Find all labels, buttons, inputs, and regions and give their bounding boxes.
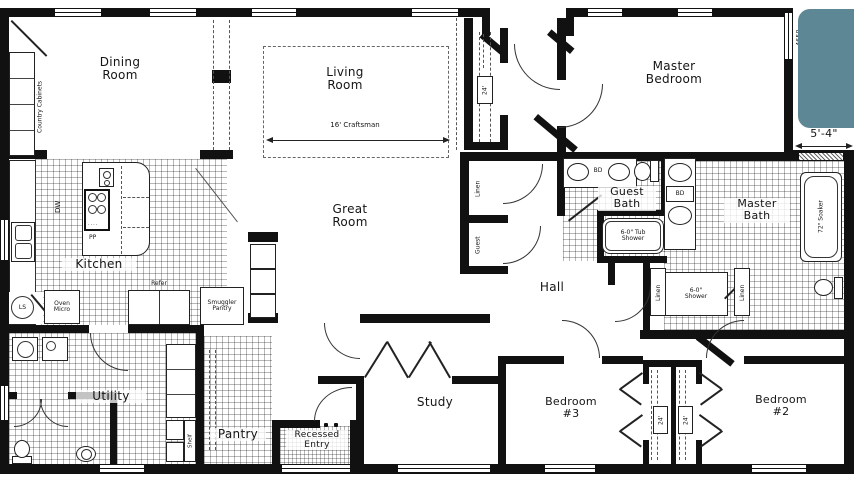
room-label-bedroom2: Bedroom #2 xyxy=(746,394,816,419)
utility-cabinet-box xyxy=(166,442,184,462)
arch-cased-opening xyxy=(229,20,230,150)
linen-door-arc xyxy=(503,164,543,204)
closet3-shelf: 24' xyxy=(653,406,668,434)
bifold-door xyxy=(700,430,723,447)
dishwasher-label: DW xyxy=(52,196,64,218)
lazy-susan-label: LS xyxy=(11,296,34,319)
room-label-hall: Hall xyxy=(528,281,576,294)
entry-closet-shelf: 24' xyxy=(477,76,493,104)
dryer xyxy=(42,337,68,361)
refrigerator-label: Refer xyxy=(128,281,190,287)
refrigerator xyxy=(128,290,190,325)
smuggler-pantry-label: Smuggler Pantry xyxy=(208,300,237,313)
great-room-cabinet xyxy=(250,269,276,294)
entry-closet-shelf-label: 24' xyxy=(478,77,492,103)
wall xyxy=(602,356,643,364)
entry-porch-sill xyxy=(282,464,350,474)
wall xyxy=(360,314,490,323)
wall xyxy=(498,356,506,464)
guest-sink xyxy=(567,163,589,181)
great-room-cabinet xyxy=(250,244,276,269)
french-door-leaf xyxy=(428,341,451,378)
cooktop: .... xyxy=(84,189,110,231)
arch-cased-opening xyxy=(213,20,214,150)
utility-cabinet-box xyxy=(166,420,184,440)
room-label-utility: Utility xyxy=(76,390,146,403)
utility-shelf: Shelf xyxy=(184,420,196,462)
wall xyxy=(608,263,615,285)
wall xyxy=(671,364,676,464)
window xyxy=(412,8,458,17)
washer xyxy=(12,337,38,361)
storm-door-line xyxy=(483,34,484,68)
wall xyxy=(272,420,280,464)
bath-toilet xyxy=(14,440,30,458)
living-room-carpet-edge xyxy=(263,46,449,158)
master-shower-label: 6-0" Shower xyxy=(685,288,707,301)
porch-opening xyxy=(488,8,568,18)
bifold-door xyxy=(620,414,643,431)
room-label-dining: Dining Room xyxy=(75,56,165,83)
master-bath-bd-label: BD xyxy=(676,191,685,197)
guest-tub: 6-0" Tub Shower xyxy=(602,218,664,254)
master-bd-cabinet: BD xyxy=(666,186,694,202)
guest-bath-bd-label: BD xyxy=(588,168,608,174)
guest-toilet xyxy=(634,162,651,181)
soaker-tub: 72" Soaker xyxy=(800,172,842,262)
room-label-master-bedroom: Master Bedroom xyxy=(618,60,730,87)
decorative-teal-block xyxy=(798,9,854,128)
wall xyxy=(8,8,788,17)
living-width-dimension: 16' Craftsman xyxy=(305,122,405,130)
window xyxy=(545,464,595,474)
french-door-leaf xyxy=(364,341,388,378)
master-toilet xyxy=(814,279,833,296)
utility-shelf-label: Shelf xyxy=(185,422,196,461)
kitchen-island: .... PP xyxy=(82,162,150,256)
floor-plan: Country Cabinets DW LS Oven Micro Refer … xyxy=(0,0,854,482)
oven-micro: Oven Micro xyxy=(44,290,80,324)
window xyxy=(252,8,296,17)
window xyxy=(55,8,101,17)
bifold-door xyxy=(620,372,643,389)
window xyxy=(784,13,793,59)
door-mark xyxy=(324,423,328,427)
window xyxy=(0,220,9,260)
bifold-door xyxy=(699,414,722,431)
closet-shelf-line xyxy=(651,370,652,460)
wall xyxy=(464,18,473,150)
french-door-leaf xyxy=(408,341,432,378)
master-sink xyxy=(668,163,692,182)
room-label-master-bath: Master Bath xyxy=(724,198,790,223)
room-label-great-room: Great Room xyxy=(318,203,382,230)
bifold-door xyxy=(700,388,723,405)
room-label-bedroom3: Bedroom #3 xyxy=(536,396,606,421)
bedroom3-door-arc xyxy=(562,320,600,358)
guest-tub-label: 6-0" Tub Shower xyxy=(621,230,646,243)
bifold-door xyxy=(619,388,642,405)
closet2-shelf: 24' xyxy=(678,406,693,434)
window xyxy=(150,8,196,17)
hall-guest-label: Guest xyxy=(472,227,484,263)
wall xyxy=(200,150,233,159)
master-bedroom-door-arc xyxy=(559,84,603,128)
room-label-guest-bath: Guest Bath xyxy=(598,186,656,211)
master-sink xyxy=(668,206,692,225)
wall xyxy=(460,155,469,273)
arrowhead xyxy=(266,137,273,143)
window xyxy=(588,8,622,17)
master-linen-label: Linen xyxy=(736,270,749,315)
wall xyxy=(452,376,502,384)
wall xyxy=(128,325,196,333)
utility-cabinets xyxy=(166,344,196,418)
closet3-shelf-label: 24' xyxy=(655,408,667,433)
door-mark xyxy=(334,423,338,427)
country-cabinets-label: Country Cabinets xyxy=(35,62,45,152)
room-label-study: Study xyxy=(406,396,464,409)
wall xyxy=(643,440,649,464)
dimension-line xyxy=(797,146,851,147)
guest-toilet-tank xyxy=(650,160,659,182)
wall xyxy=(9,325,89,333)
wall xyxy=(498,356,564,364)
lazy-susan: LS xyxy=(9,292,43,324)
window xyxy=(100,464,144,474)
great-room-cabinet xyxy=(250,294,276,318)
master-linen-label: Linen xyxy=(652,270,665,315)
bifold-door xyxy=(699,372,722,389)
wall xyxy=(597,256,667,263)
front-door-arc xyxy=(514,44,560,90)
master-linen-closet: Linen xyxy=(650,268,666,316)
guest-sink xyxy=(608,163,630,181)
master-shower: 6-0" Shower xyxy=(664,272,728,316)
window xyxy=(398,464,490,474)
arrowhead xyxy=(443,137,450,143)
floor-break-line xyxy=(456,18,457,150)
wall xyxy=(460,266,508,274)
oven-micro-label: Oven Micro xyxy=(54,301,70,314)
wall xyxy=(350,420,358,464)
wall xyxy=(248,232,278,242)
arrowhead xyxy=(795,143,802,149)
island-pp-label: PP xyxy=(89,235,113,241)
wall xyxy=(460,215,508,223)
wall xyxy=(9,392,17,399)
guest-closet-door-arc xyxy=(503,226,541,264)
wall xyxy=(464,142,508,150)
window xyxy=(0,386,9,420)
wall xyxy=(844,150,854,474)
master-toilet-tank xyxy=(834,277,843,299)
wall xyxy=(597,210,667,216)
french-door-leaf xyxy=(386,341,409,378)
room-label-recessed-entry: Recessed Entry xyxy=(286,430,348,450)
bath-sink xyxy=(76,446,96,462)
room-label-pantry: Pantry xyxy=(210,428,266,441)
room-label-living: Living Room xyxy=(300,66,390,93)
master-linen-closet: Linen xyxy=(734,268,750,316)
room-label-kitchen: Kitchen xyxy=(62,258,136,271)
entry-door-arc xyxy=(314,387,352,421)
closet2-shelf-label: 24' xyxy=(680,408,692,433)
wall xyxy=(643,364,649,384)
master-offset-dimension: 5'-4" xyxy=(798,128,850,140)
island-sink xyxy=(99,168,114,187)
smuggler-pantry: Smuggler Pantry xyxy=(200,287,244,325)
wall xyxy=(744,356,844,364)
window xyxy=(798,152,844,161)
country-cabinets xyxy=(9,52,35,156)
hall-door-arc xyxy=(324,323,360,359)
dimension-line xyxy=(270,140,448,141)
wall xyxy=(196,325,204,464)
soaker-tub-label: 72" Soaker xyxy=(805,177,837,257)
arrowhead xyxy=(846,143,853,149)
window xyxy=(752,464,806,474)
hall-linen-label: Linen xyxy=(472,168,484,210)
wall xyxy=(566,8,574,36)
bifold-door xyxy=(619,430,642,447)
kitchen-sink xyxy=(11,222,35,262)
window xyxy=(678,8,712,17)
